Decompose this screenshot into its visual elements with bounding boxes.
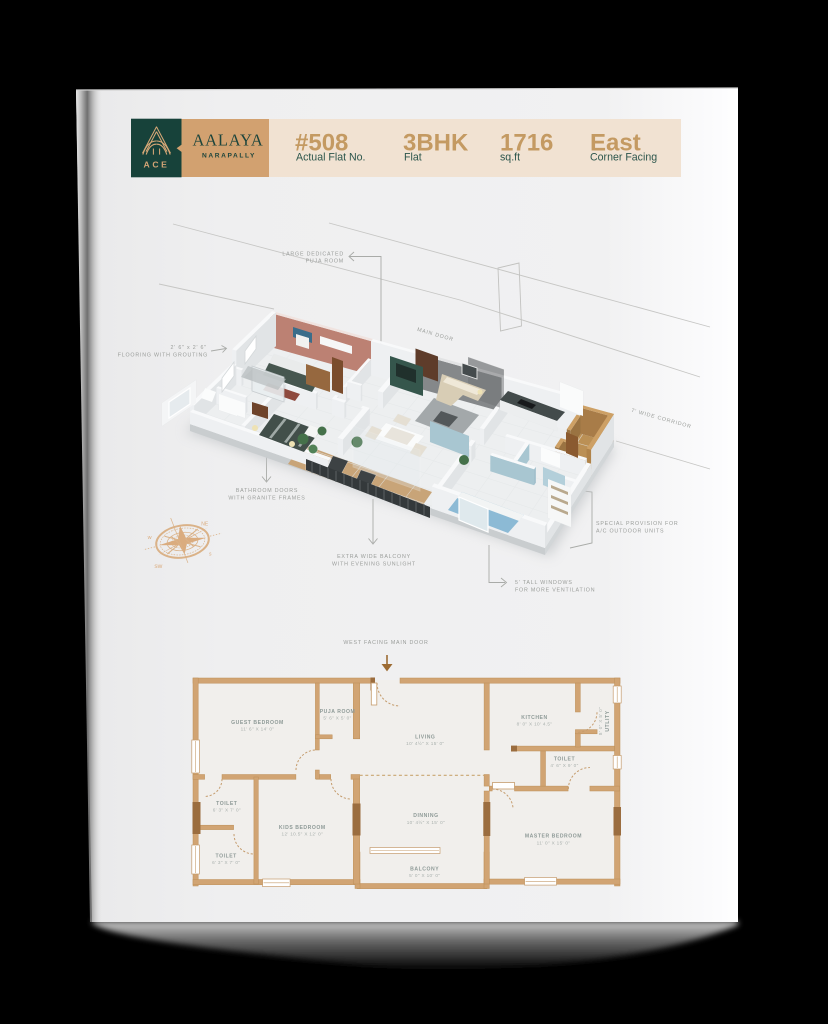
svg-text:10' 4½" X 15' 0": 10' 4½" X 15' 0" xyxy=(406,740,444,746)
svg-text:PUJA ROOM: PUJA ROOM xyxy=(306,259,344,265)
svg-text:KIDS BEDROOM: KIDS BEDROOM xyxy=(279,825,326,831)
svg-text:DINNING: DINNING xyxy=(413,813,438,819)
svg-text:Corner Facing: Corner Facing xyxy=(590,152,657,164)
svg-text:TOILET: TOILET xyxy=(554,757,576,763)
svg-text:6' 3" X 7' 0": 6' 3" X 7' 0" xyxy=(213,808,241,813)
svg-text:ACE: ACE xyxy=(144,160,170,170)
svg-text:SPECIAL PROVISION FOR: SPECIAL PROVISION FOR xyxy=(596,521,679,527)
svg-text:FOR MORE VENTILATION: FOR MORE VENTILATION xyxy=(515,588,595,594)
svg-text:5' 0" X 10' 0": 5' 0" X 10' 0" xyxy=(409,873,440,878)
svg-text:GUEST BEDROOM: GUEST BEDROOM xyxy=(231,720,284,726)
svg-text:12' 10.5" X 12' 0": 12' 10.5" X 12' 0" xyxy=(282,832,324,837)
svg-text:AALAYA: AALAYA xyxy=(192,131,263,150)
svg-text:8' 0" X 5' 0": 8' 0" X 5' 0" xyxy=(598,707,603,735)
svg-text:WEST FACING MAIN DOOR: WEST FACING MAIN DOOR xyxy=(343,640,428,646)
svg-text:LARGE DEDICATED: LARGE DEDICATED xyxy=(282,252,344,258)
svg-text:PUJA ROOM: PUJA ROOM xyxy=(320,709,356,715)
svg-text:UTLITY: UTLITY xyxy=(605,710,611,731)
svg-text:TOILET: TOILET xyxy=(216,801,238,807)
svg-text:WITH GRANITE FRAMES: WITH GRANITE FRAMES xyxy=(228,496,305,502)
svg-text:5' TALL WINDOWS: 5' TALL WINDOWS xyxy=(515,580,573,586)
svg-text:6' 3" X 7' 0": 6' 3" X 7' 0" xyxy=(212,860,240,865)
svg-text:BALCONY: BALCONY xyxy=(410,867,439,873)
svg-text:4' 6" X 9' 0": 4' 6" X 9' 0" xyxy=(550,763,578,768)
svg-text:NE: NE xyxy=(201,521,209,527)
svg-text:MASTER BEDROOM: MASTER BEDROOM xyxy=(525,834,582,840)
svg-text:11' 6" X 14' 0": 11' 6" X 14' 0" xyxy=(241,727,275,732)
svg-text:8' 0" X 10' 4.5": 8' 0" X 10' 4.5" xyxy=(517,722,553,727)
svg-text:2' 6" x 2' 6": 2' 6" x 2' 6" xyxy=(170,345,207,351)
svg-text:10' 4½" X 15' 0": 10' 4½" X 15' 0" xyxy=(407,819,445,825)
svg-text:FLOORING WITH GROUTING: FLOORING WITH GROUTING xyxy=(118,353,208,359)
svg-text:w: w xyxy=(147,535,152,541)
svg-text:sq.ft: sq.ft xyxy=(500,152,520,164)
svg-text:NARAPALLY: NARAPALLY xyxy=(202,153,256,160)
svg-text:EXTRA WIDE BALCONY: EXTRA WIDE BALCONY xyxy=(337,554,411,560)
svg-text:Actual Flat No.: Actual Flat No. xyxy=(296,152,365,164)
svg-text:LIVING: LIVING xyxy=(415,735,435,741)
svg-text:KITCHEN: KITCHEN xyxy=(521,715,548,721)
svg-text:WITH EVENING SUNLIGHT: WITH EVENING SUNLIGHT xyxy=(332,562,416,568)
svg-text:5' 6" X 5' 0": 5' 6" X 5' 0" xyxy=(323,716,351,721)
svg-text:BATHROOM DOORS: BATHROOM DOORS xyxy=(236,488,298,494)
svg-text:Flat: Flat xyxy=(404,152,422,164)
svg-text:TOILET: TOILET xyxy=(216,854,238,860)
svg-text:sw: sw xyxy=(154,563,162,570)
svg-text:A/C OUTDOOR UNITS: A/C OUTDOOR UNITS xyxy=(596,529,664,535)
svg-text:11' 0" X 15' 0": 11' 0" X 15' 0" xyxy=(537,841,571,846)
